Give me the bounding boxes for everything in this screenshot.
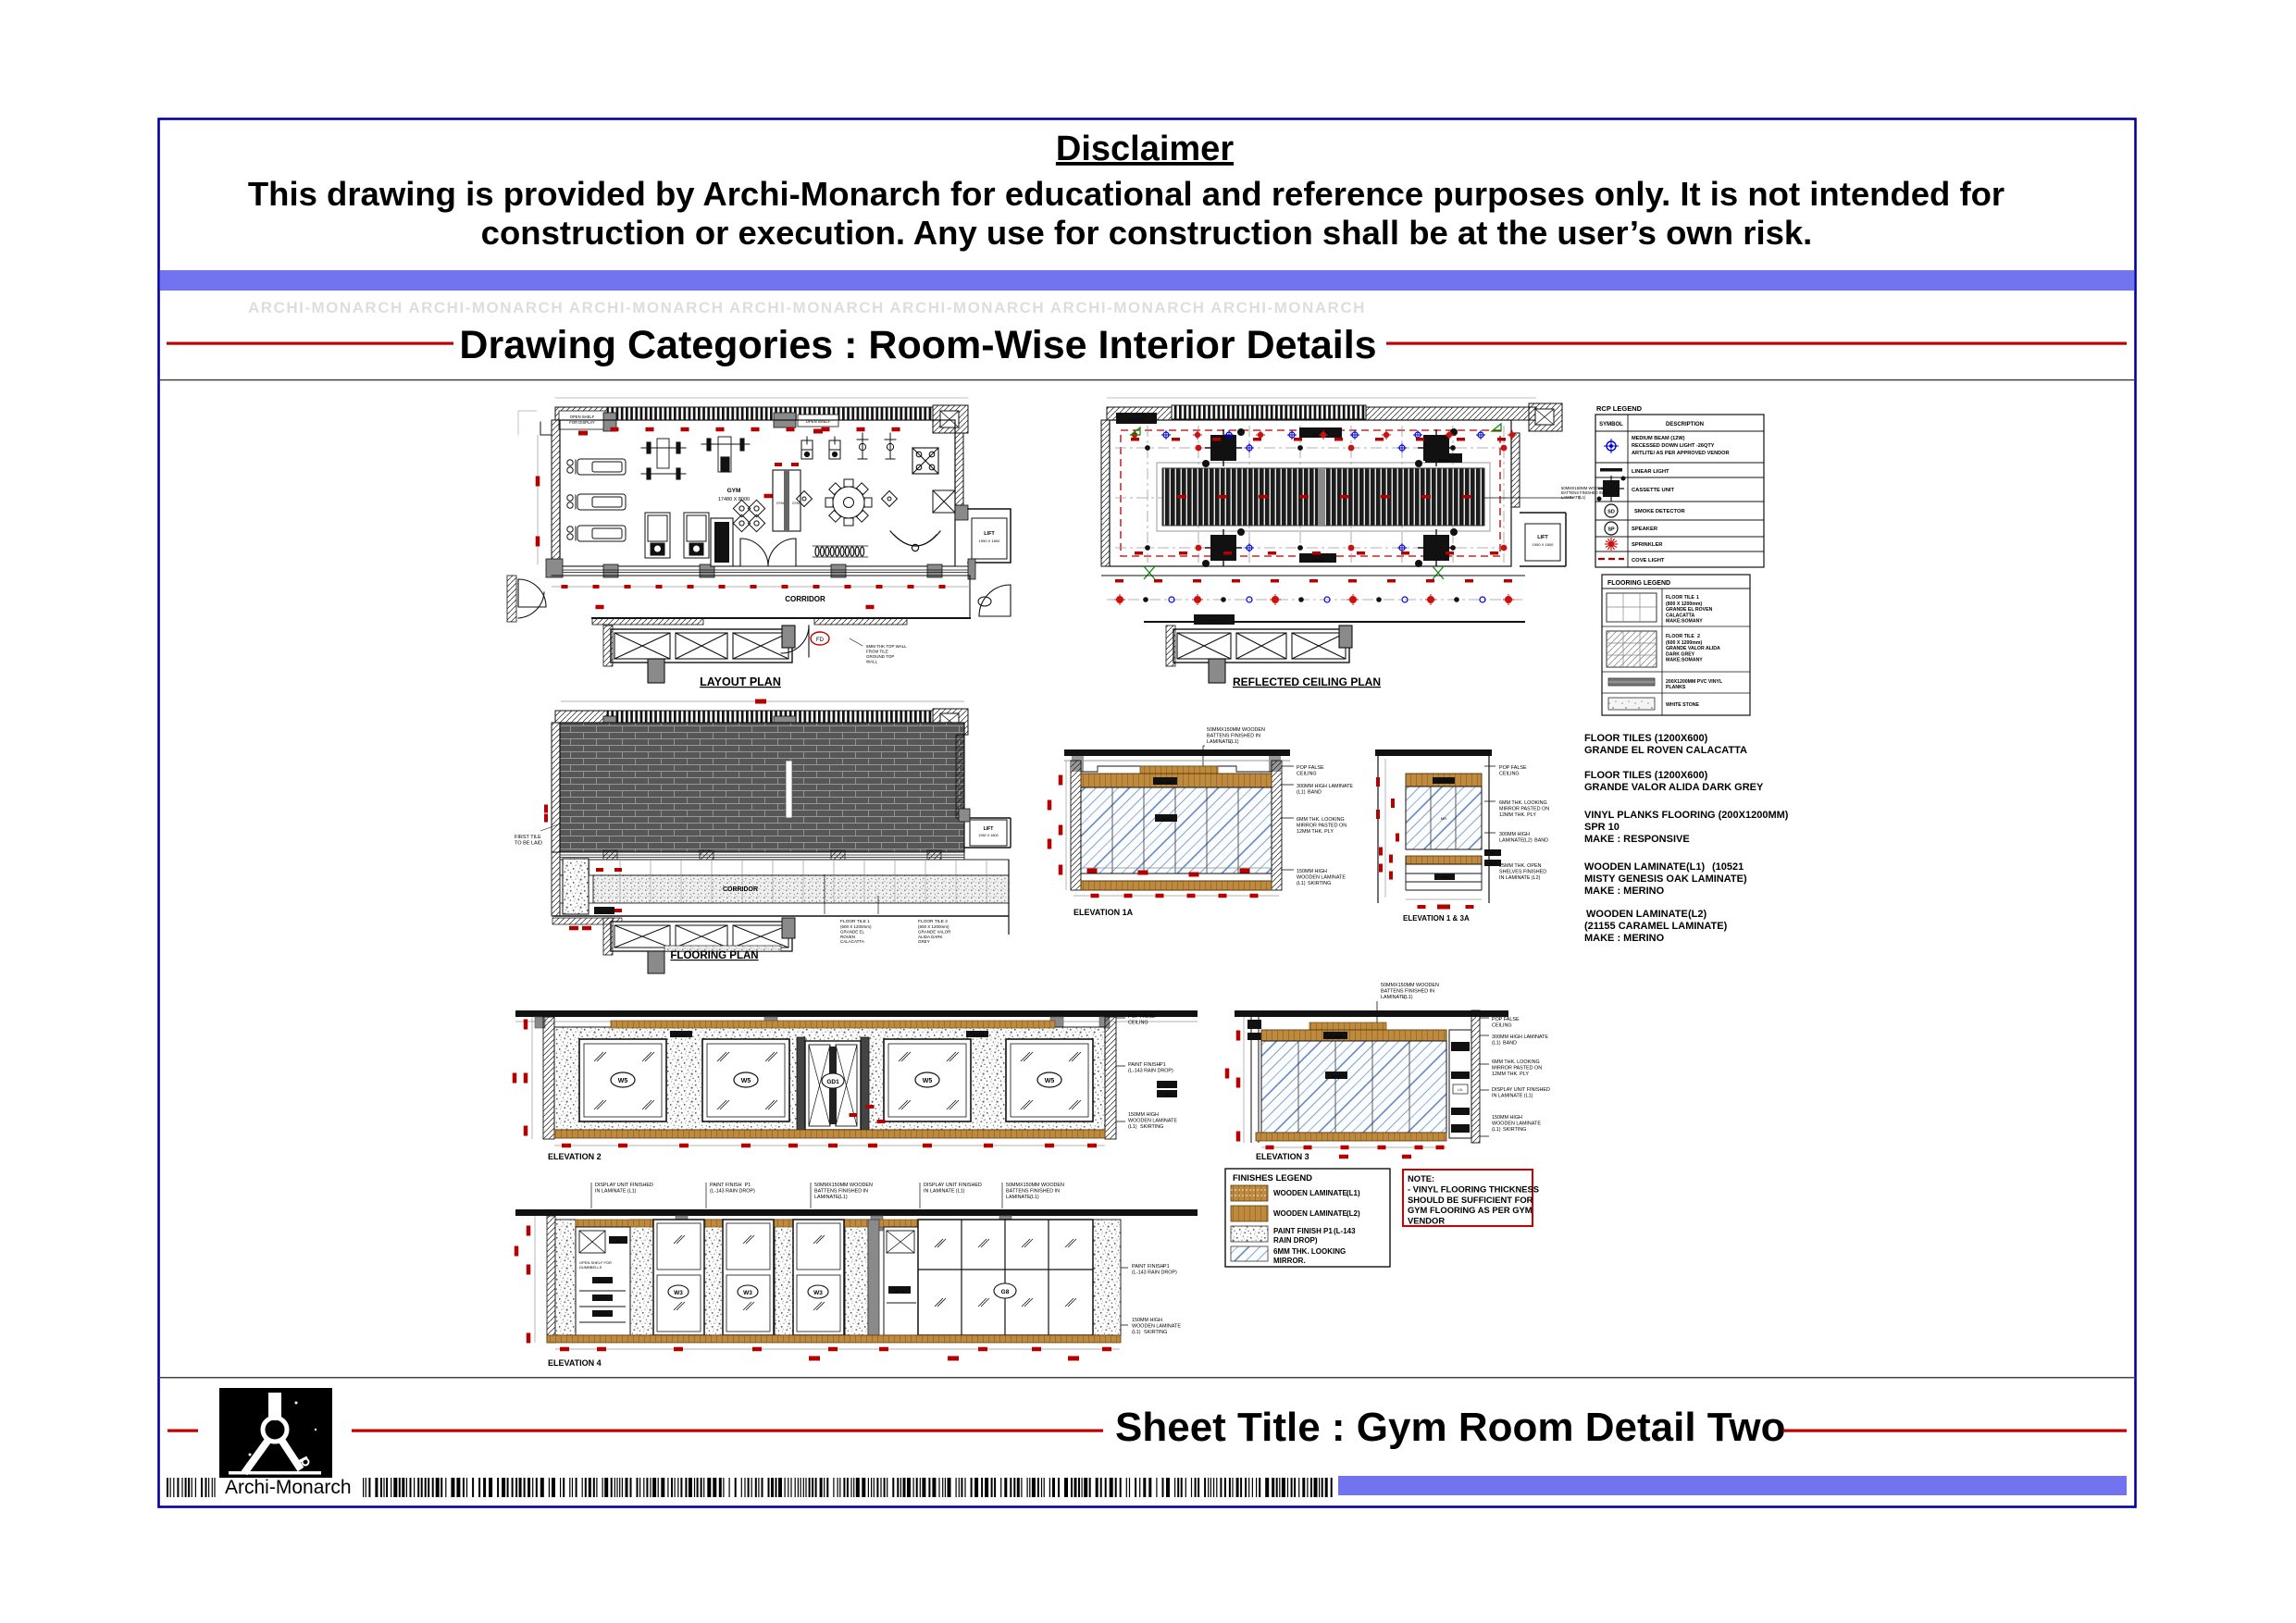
svg-text:MAKE : MERINO: MAKE : MERINO bbox=[1584, 886, 1665, 897]
svg-text:SHOULD BE SUFFICIENT FOR: SHOULD BE SUFFICIENT FOR bbox=[1408, 1195, 1533, 1205]
svg-text:LVL+2400: LVL+2400 bbox=[675, 1034, 688, 1037]
svg-text:WOODEN LAMINATE: WOODEN LAMINATE bbox=[1492, 1121, 1541, 1126]
svg-text:MAKE:SOMANY: MAKE:SOMANY bbox=[1666, 658, 1703, 663]
svg-text:WOODEN LAMINATE: WOODEN LAMINATE bbox=[1586, 909, 1688, 920]
svg-text:(L1): (L1) bbox=[1297, 881, 1306, 886]
svg-text:CORRIDOR: CORRIDOR bbox=[785, 595, 825, 603]
svg-text:IN LAMINATE: IN LAMINATE bbox=[924, 1188, 955, 1194]
svg-text:PAINT FINISH: PAINT FINISH bbox=[1273, 1227, 1322, 1235]
svg-text:IN LAMINATE: IN LAMINATE bbox=[595, 1188, 627, 1194]
svg-text:FROM TILE: FROM TILE bbox=[866, 650, 888, 654]
svg-text:IN LAMINATE: IN LAMINATE bbox=[1499, 875, 1531, 881]
svg-text:(L-143 RAIN DROP): (L-143 RAIN DROP) bbox=[710, 1188, 755, 1194]
svg-text:150MM HIGH: 150MM HIGH bbox=[1492, 1115, 1522, 1121]
svg-text:LVL: LVL bbox=[1164, 1084, 1170, 1088]
svg-text:1950 X 1800: 1950 X 1800 bbox=[978, 834, 999, 837]
svg-text:GRANDE EL ROVEN CALACATTA: GRANDE EL ROVEN CALACATTA bbox=[1584, 745, 1747, 756]
svg-text:150MM HIGH: 150MM HIGH bbox=[1128, 1112, 1159, 1118]
svg-text:W3: W3 bbox=[674, 1290, 683, 1296]
svg-text:FIRST TILE: FIRST TILE bbox=[515, 835, 541, 840]
svg-text:6MM THK. LOOKING: 6MM THK. LOOKING bbox=[1499, 800, 1547, 806]
svg-text:ALIDA DARK: ALIDA DARK bbox=[918, 935, 943, 939]
svg-text:(L1): (L1) bbox=[1492, 1040, 1501, 1046]
svg-text:SMOKE DETECTOR: SMOKE DETECTOR bbox=[1634, 509, 1685, 514]
svg-text:1: 1 bbox=[1696, 595, 1699, 601]
svg-text:GYM: GYM bbox=[727, 488, 741, 494]
svg-text:MR-01: MR-01 bbox=[1332, 1075, 1341, 1079]
svg-text:(600 X 1200mm): (600 X 1200mm) bbox=[1666, 640, 1702, 646]
svg-text:GROUND TOP: GROUND TOP bbox=[866, 654, 894, 659]
svg-text:GYM FLOORING AS PER GYM: GYM FLOORING AS PER GYM bbox=[1408, 1205, 1533, 1215]
svg-text:LIFT: LIFT bbox=[984, 826, 994, 832]
svg-text:RECESSED DOWN LIGHT -26QTY: RECESSED DOWN LIGHT -26QTY bbox=[1632, 443, 1715, 449]
svg-text:ELEVATION 2: ELEVATION 2 bbox=[548, 1152, 602, 1161]
svg-text:BATTENS FINISHED IN: BATTENS FINISHED IN bbox=[1006, 1188, 1060, 1194]
svg-text:WOODEN LAMINATE: WOODEN LAMINATE bbox=[1128, 1118, 1177, 1123]
svg-text:ELEVATION 4: ELEVATION 4 bbox=[548, 1358, 602, 1368]
svg-text:LVL+2400: LVL+2400 bbox=[1328, 1035, 1342, 1039]
svg-text:LIFT: LIFT bbox=[984, 531, 995, 537]
svg-text:PLANKS: PLANKS bbox=[1666, 685, 1686, 690]
svg-text:ARCHI-MONARCH ARCHI-MONARCH AR: ARCHI-MONARCH ARCHI-MONARCH ARCHI-MONARC… bbox=[248, 299, 1366, 316]
svg-text:(L2): (L2) bbox=[1347, 1209, 1360, 1218]
svg-text:6MM THK. LOOKING: 6MM THK. LOOKING bbox=[1492, 1059, 1540, 1065]
svg-text:W3: W3 bbox=[813, 1290, 823, 1296]
svg-text:(L2): (L2) bbox=[1532, 875, 1541, 881]
svg-text:SKIRTING: SKIRTING bbox=[1140, 1124, 1163, 1130]
svg-text:300MM HIGH LAMINATE: 300MM HIGH LAMINATE bbox=[1297, 784, 1353, 789]
svg-text:- VINYL FLOORING THICKNESS: - VINYL FLOORING THICKNESS bbox=[1408, 1183, 1539, 1194]
svg-text:12MM THK. PLY: 12MM THK. PLY bbox=[1297, 829, 1334, 835]
svg-text:W5: W5 bbox=[618, 1078, 628, 1084]
svg-text:(L2): (L2) bbox=[1523, 837, 1533, 843]
svg-text:W5: W5 bbox=[923, 1078, 933, 1084]
svg-text:MIRROR.: MIRROR. bbox=[1273, 1257, 1306, 1265]
svg-text:(L-143: (L-143 bbox=[1334, 1227, 1356, 1235]
svg-text:W3: W3 bbox=[743, 1290, 752, 1296]
svg-text:W5: W5 bbox=[741, 1078, 751, 1084]
svg-text:6MM THK. LOOKING: 6MM THK. LOOKING bbox=[1273, 1247, 1346, 1256]
svg-text:POP FALSE: POP FALSE bbox=[1499, 765, 1527, 771]
svg-text:+450: +450 bbox=[1441, 876, 1447, 880]
svg-text:LVL: LVL bbox=[615, 1240, 621, 1244]
svg-text:RCP LEGEND: RCP LEGEND bbox=[1596, 404, 1643, 413]
svg-text:ELEVATION 3: ELEVATION 3 bbox=[1256, 1152, 1309, 1161]
svg-text:50MMX150MM WOODEN: 50MMX150MM WOODEN bbox=[1207, 727, 1265, 733]
svg-text:CALACATTA: CALACATTA bbox=[840, 939, 864, 944]
svg-text:(L-143 RAIN DROP): (L-143 RAIN DROP) bbox=[1128, 1068, 1173, 1073]
svg-text:SPEAKER: SPEAKER bbox=[1632, 527, 1658, 532]
svg-text:LVL+2400: LVL+2400 bbox=[971, 1034, 984, 1037]
svg-text:300MM HIGH LAMINATE: 300MM HIGH LAMINATE bbox=[1492, 1035, 1548, 1040]
svg-text:GYM: GYM bbox=[776, 502, 784, 505]
svg-text:IN LAMINATE: IN LAMINATE bbox=[1492, 1093, 1523, 1098]
svg-text:BATTENS FINISHED IN: BATTENS FINISHED IN bbox=[814, 1188, 868, 1194]
svg-text:WOODEN LAMINATE: WOODEN LAMINATE bbox=[1273, 1189, 1348, 1197]
svg-text:DESCRIPTION: DESCRIPTION bbox=[1666, 422, 1704, 427]
svg-text:G8: G8 bbox=[1001, 1289, 1010, 1295]
svg-text:Archi-Monarch: Archi-Monarch bbox=[225, 1477, 352, 1498]
svg-text:FLOOR TILE: FLOOR TILE bbox=[1666, 634, 1694, 639]
svg-text:DISPLAY UNIT FINISHED: DISPLAY UNIT FINISHED bbox=[1492, 1087, 1550, 1093]
svg-text:50MMX150MM WOODEN: 50MMX150MM WOODEN bbox=[1006, 1183, 1064, 1188]
svg-text:REFLECTED CEILING PLAN: REFLECTED CEILING PLAN bbox=[1233, 675, 1381, 688]
svg-text:VENDOR: VENDOR bbox=[1408, 1216, 1445, 1226]
svg-text:DISPLAY UNIT FINISHED: DISPLAY UNIT FINISHED bbox=[924, 1183, 982, 1188]
svg-text:BAND: BAND bbox=[1503, 1040, 1517, 1046]
svg-text:Sheet Title : Gym Room Detail: Sheet Title : Gym Room Detail Two bbox=[1115, 1405, 1785, 1450]
svg-text:CEILING: CEILING bbox=[1492, 1022, 1512, 1028]
svg-text:FOR DISPLAY: FOR DISPLAY bbox=[569, 420, 595, 425]
svg-text:P1: P1 bbox=[1163, 1264, 1170, 1270]
svg-text:POP FALSE: POP FALSE bbox=[1297, 765, 1324, 771]
svg-text:GD1: GD1 bbox=[826, 1079, 839, 1085]
svg-text:(L1): (L1) bbox=[1524, 1093, 1533, 1098]
svg-text:LVL-450: LVL-450 bbox=[597, 1280, 607, 1283]
svg-text:PAINT FINISH: PAINT FINISH bbox=[710, 1183, 742, 1188]
svg-text:(L1): (L1) bbox=[1347, 1189, 1360, 1197]
svg-text:(L1): (L1) bbox=[1297, 789, 1306, 795]
svg-text:(L1): (L1) bbox=[1404, 995, 1413, 1000]
svg-text:17480 X 8000: 17480 X 8000 bbox=[718, 497, 750, 502]
svg-text:(L1): (L1) bbox=[1128, 1124, 1137, 1130]
svg-text:(L1): (L1) bbox=[1686, 861, 1706, 873]
svg-text:LAMINATE: LAMINATE bbox=[1499, 837, 1524, 843]
svg-text:P1: P1 bbox=[745, 1183, 751, 1188]
svg-text:LAMINATE: LAMINATE bbox=[1561, 495, 1581, 500]
svg-text:FLOOR TILES (1200X600): FLOOR TILES (1200X600) bbox=[1584, 770, 1708, 781]
svg-text:MAKE : RESPONSIVE: MAKE : RESPONSIVE bbox=[1584, 834, 1690, 845]
svg-text:12MM THK. PLY: 12MM THK. PLY bbox=[1492, 1072, 1529, 1077]
svg-text:GRANDE VALOR ALIDA DARK GREY: GRANDE VALOR ALIDA DARK GREY bbox=[1584, 782, 1764, 793]
svg-text:W5: W5 bbox=[1045, 1078, 1055, 1084]
svg-text:LAMINATE: LAMINATE bbox=[1381, 995, 1406, 1000]
svg-text:ELEVATION 1 & 3A: ELEVATION 1 & 3A bbox=[1403, 914, 1470, 923]
svg-text:MR-01: MR-01 bbox=[1161, 818, 1171, 822]
svg-text:FINISHES LEGEND: FINISHES LEGEND bbox=[1233, 1173, 1312, 1183]
svg-text:SD: SD bbox=[1607, 510, 1615, 515]
svg-text:CEILING: CEILING bbox=[1310, 558, 1325, 563]
svg-text:GRANDE EL ROVEN: GRANDE EL ROVEN bbox=[1666, 607, 1713, 613]
svg-text:Disclaimer: Disclaimer bbox=[1056, 130, 1234, 168]
svg-text:LAMINATE: LAMINATE bbox=[1207, 739, 1232, 745]
svg-text:CORRIDOR: CORRIDOR bbox=[723, 886, 758, 893]
svg-text:WOODEN LAMINATE: WOODEN LAMINATE bbox=[1297, 874, 1346, 880]
svg-text:150MM HIGH: 150MM HIGH bbox=[1297, 869, 1327, 874]
svg-text:LVL: LVL bbox=[1458, 1088, 1463, 1092]
svg-text:(800 X 1200mm): (800 X 1200mm) bbox=[1666, 601, 1702, 607]
svg-text:(L2): (L2) bbox=[1688, 909, 1707, 920]
svg-text:Drawing Categories : Room-Wise: Drawing Categories : Room-Wise Interior … bbox=[459, 323, 1376, 367]
svg-text:BAND: BAND bbox=[1534, 837, 1548, 843]
svg-text:LINEAR LIGHT: LINEAR LIGHT bbox=[1632, 469, 1669, 475]
svg-text:WOODEN LAMINATE: WOODEN LAMINATE bbox=[1132, 1323, 1181, 1329]
svg-text:SPRINKLER: SPRINKLER bbox=[1632, 542, 1663, 548]
svg-text:POP FALSE: POP FALSE bbox=[1128, 1014, 1156, 1020]
svg-text:This drawing is provided by Ar: This drawing is provided by Archi-Monarc… bbox=[248, 175, 2004, 213]
svg-text:TO BE LAID: TO BE LAID bbox=[515, 841, 542, 847]
svg-text:WOODEN LAMINATE: WOODEN LAMINATE bbox=[1584, 861, 1686, 873]
svg-text:2: 2 bbox=[1697, 634, 1700, 639]
svg-text:6MM THK. LOOKING: 6MM THK. LOOKING bbox=[1297, 817, 1345, 823]
svg-text:P1: P1 bbox=[1323, 1227, 1333, 1235]
svg-text:SKIRTING: SKIRTING bbox=[1144, 1330, 1167, 1335]
svg-text:CEILING: CEILING bbox=[1128, 1020, 1148, 1025]
svg-text:LVL-450: LVL-450 bbox=[894, 1290, 905, 1294]
svg-text:GRANDE EL: GRANDE EL bbox=[840, 929, 865, 934]
svg-text:1950 X 1800: 1950 X 1800 bbox=[979, 539, 1000, 543]
svg-text:POP FALSE: POP FALSE bbox=[1492, 1017, 1520, 1022]
svg-text:(L1): (L1) bbox=[1492, 1127, 1501, 1133]
svg-text:DISPLAY UNIT FINISHED: DISPLAY UNIT FINISHED bbox=[595, 1183, 653, 1188]
svg-text:(21155 CARAMEL LAMINATE): (21155 CARAMEL LAMINATE) bbox=[1584, 921, 1728, 932]
svg-text:WALL: WALL bbox=[866, 660, 878, 664]
svg-text:PAINT FINISH: PAINT FINISH bbox=[1132, 1264, 1164, 1270]
svg-text:(L1): (L1) bbox=[1579, 495, 1586, 500]
svg-text:+450: +450 bbox=[1163, 1094, 1171, 1097]
svg-text:(L1): (L1) bbox=[1132, 1330, 1141, 1335]
svg-text:CALACATTA: CALACATTA bbox=[1666, 613, 1694, 618]
svg-text:200X1200MM PVC VINYL: 200X1200MM PVC VINYL bbox=[1666, 679, 1723, 685]
svg-text:25MM THK. OPEN: 25MM THK. OPEN bbox=[1499, 863, 1542, 869]
svg-text:ELEVATION 1A: ELEVATION 1A bbox=[1074, 908, 1134, 917]
svg-text:FLOOR TILE: FLOOR TILE bbox=[1666, 595, 1694, 601]
svg-text:SKIRTING: SKIRTING bbox=[1503, 1127, 1526, 1133]
svg-text:(600 X 1200mm): (600 X 1200mm) bbox=[918, 924, 949, 929]
svg-text:6MM THK TOP WALL: 6MM THK TOP WALL bbox=[866, 644, 907, 649]
svg-text:WHITE STONE: WHITE STONE bbox=[1666, 702, 1699, 708]
svg-text:MIRROR PASTED ON: MIRROR PASTED ON bbox=[1499, 806, 1549, 811]
svg-text:SKIRTING: SKIRTING bbox=[1308, 881, 1331, 886]
svg-text:(L1): (L1) bbox=[838, 1195, 848, 1200]
svg-text:150MM HIGH: 150MM HIGH bbox=[1132, 1318, 1162, 1323]
svg-text:12MM THK. PLY: 12MM THK. PLY bbox=[1499, 812, 1536, 818]
svg-text:FLOORING LEGEND: FLOORING LEGEND bbox=[1607, 580, 1670, 587]
svg-text:SP: SP bbox=[1607, 527, 1615, 533]
svg-text:300MM HIGH: 300MM HIGH bbox=[1499, 832, 1530, 837]
svg-text:MR: MR bbox=[1441, 816, 1446, 821]
svg-text:MIRROR PASTED ON: MIRROR PASTED ON bbox=[1492, 1065, 1542, 1071]
svg-text:SKIRTING: SKIRTING bbox=[598, 911, 612, 914]
svg-text:SHELVES FINISHED: SHELVES FINISHED bbox=[1499, 869, 1546, 874]
svg-text:(L1): (L1) bbox=[627, 1188, 637, 1194]
svg-text:GREY: GREY bbox=[918, 939, 930, 944]
svg-text:WOODEN LAMINATE: WOODEN LAMINATE bbox=[1273, 1209, 1348, 1218]
svg-text:P1: P1 bbox=[1160, 1062, 1166, 1068]
svg-text:MAKE : MERINO: MAKE : MERINO bbox=[1584, 933, 1665, 944]
svg-text:MISTY GENESIS OAK LAMINATE): MISTY GENESIS OAK LAMINATE) bbox=[1584, 873, 1747, 885]
svg-text:(L1): (L1) bbox=[1030, 1195, 1039, 1200]
svg-text:ROVEN: ROVEN bbox=[840, 935, 855, 939]
svg-text:LAMINATE: LAMINATE bbox=[814, 1195, 839, 1200]
svg-text:MIRROR PASTED ON: MIRROR PASTED ON bbox=[1297, 823, 1347, 828]
svg-text:LVL: LVL bbox=[1490, 852, 1496, 856]
svg-text:GRANDE VALOR: GRANDE VALOR bbox=[918, 929, 951, 934]
svg-text:ARTLITE/ AS PER APPROVED VENDO: ARTLITE/ AS PER APPROVED VENDOR bbox=[1632, 451, 1730, 456]
svg-text:FLOORING PLAN: FLOORING PLAN bbox=[670, 950, 758, 961]
svg-text:LVL-450: LVL-450 bbox=[597, 1297, 607, 1301]
svg-text:LAMINATE: LAMINATE bbox=[1006, 1195, 1031, 1200]
svg-text:+600: +600 bbox=[1489, 862, 1496, 866]
svg-text:SYMBOL: SYMBOL bbox=[1599, 422, 1623, 427]
svg-text:MEDIUM BEAM (12W): MEDIUM BEAM (12W) bbox=[1632, 436, 1685, 441]
svg-text:FLOOR TILES (1200X600): FLOOR TILES (1200X600) bbox=[1584, 733, 1708, 744]
svg-text:BATTENS FINISHED IN: BATTENS FINISHED IN bbox=[1381, 988, 1434, 994]
svg-text:(600 X 1200mm): (600 X 1200mm) bbox=[840, 924, 872, 929]
svg-text:GYM: GYM bbox=[792, 502, 800, 505]
svg-text:VINYL PLANKS FLOORING (200X120: VINYL PLANKS FLOORING (200X1200MM) bbox=[1584, 810, 1789, 821]
svg-text:50MMX150MM WOODEN: 50MMX150MM WOODEN bbox=[814, 1183, 873, 1188]
svg-text:NOTE:: NOTE: bbox=[1408, 1173, 1434, 1183]
svg-text:DUMBBELLS: DUMBBELLS bbox=[579, 1265, 602, 1270]
svg-text:GRANDE VALOR ALIDA: GRANDE VALOR ALIDA bbox=[1666, 646, 1720, 651]
svg-text:CASSETTE UNIT: CASSETTE UNIT bbox=[1632, 488, 1675, 493]
svg-text:OPEN SHELF: OPEN SHELF bbox=[570, 415, 595, 419]
svg-text:LAYOUT PLAN: LAYOUT PLAN bbox=[700, 675, 781, 688]
svg-text:CEILING: CEILING bbox=[1297, 771, 1317, 776]
svg-text:BAND: BAND bbox=[1308, 789, 1322, 795]
svg-text:RAIN DROP): RAIN DROP) bbox=[1273, 1236, 1318, 1245]
svg-text:LIFT: LIFT bbox=[1537, 535, 1548, 540]
svg-text:(L-143 RAIN DROP): (L-143 RAIN DROP) bbox=[1132, 1270, 1177, 1275]
svg-text:BATTENS FINISHED IN: BATTENS FINISHED IN bbox=[1207, 733, 1260, 738]
svg-text:LVL+2400: LVL+2400 bbox=[1437, 780, 1451, 784]
svg-text:CEILING: CEILING bbox=[1499, 771, 1520, 776]
svg-text:50MMX150MM WOODEN: 50MMX150MM WOODEN bbox=[1381, 983, 1439, 988]
svg-text:FD: FD bbox=[816, 638, 825, 643]
svg-text:SPR 10: SPR 10 bbox=[1584, 822, 1620, 833]
svg-text:BAND: BAND bbox=[1438, 458, 1448, 463]
svg-text:LVL-450: LVL-450 bbox=[597, 1313, 607, 1317]
svg-text:PAINT FINISH: PAINT FINISH bbox=[1128, 1062, 1160, 1068]
svg-text:construction or execution. Any: construction or execution. Any use for c… bbox=[481, 214, 1813, 252]
svg-text:DARK GREY: DARK GREY bbox=[1666, 651, 1695, 657]
svg-text:(L1): (L1) bbox=[1230, 739, 1239, 745]
svg-text:MAKE:SOMANY: MAKE:SOMANY bbox=[1666, 619, 1703, 625]
svg-text:(10521: (10521 bbox=[1712, 861, 1744, 873]
svg-text:LVL+2400: LVL+2400 bbox=[1158, 781, 1172, 785]
svg-text:COVE LIGHT: COVE LIGHT bbox=[1632, 558, 1665, 564]
svg-text:(L1): (L1) bbox=[956, 1188, 965, 1194]
svg-text:1950 X 1800: 1950 X 1800 bbox=[1533, 542, 1554, 547]
